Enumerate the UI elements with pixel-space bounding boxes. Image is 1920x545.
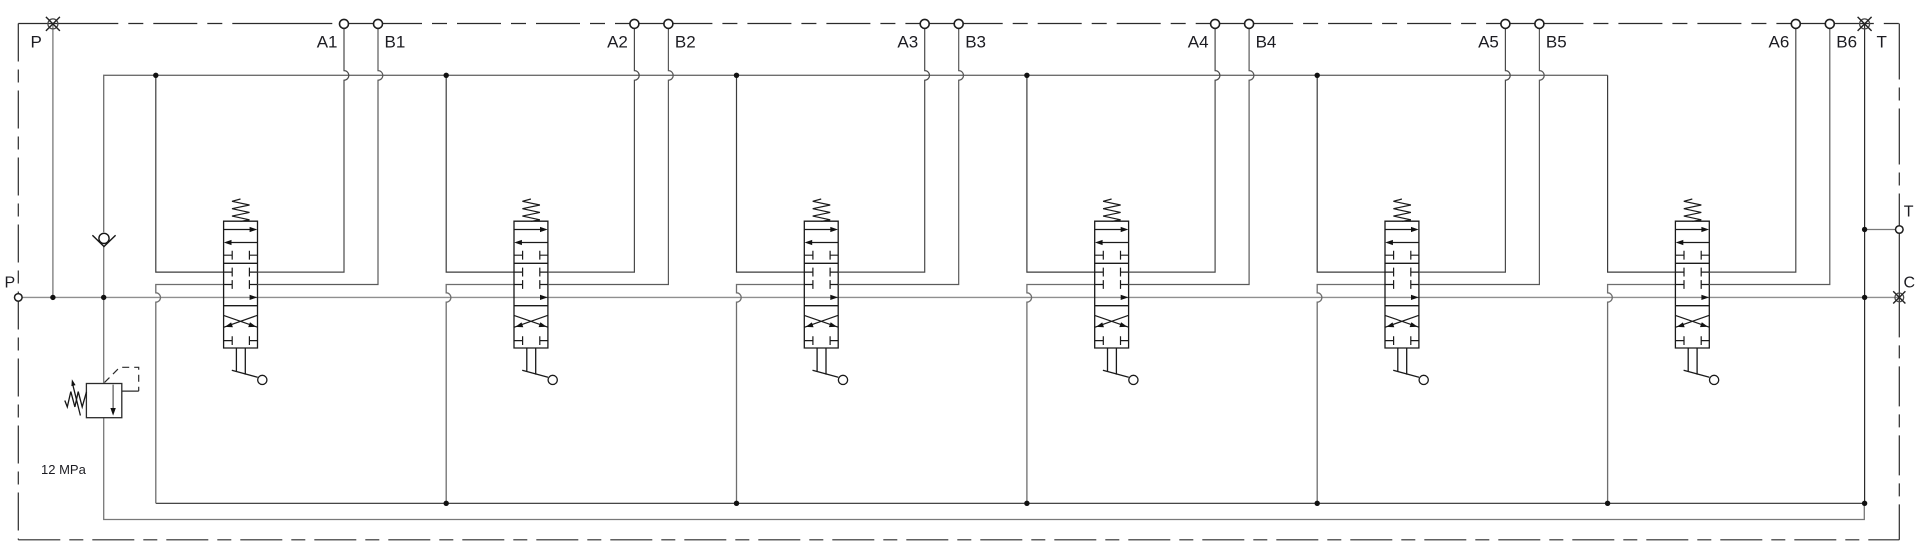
svg-text:C: C bbox=[1904, 275, 1916, 292]
svg-text:B2: B2 bbox=[675, 33, 696, 52]
svg-text:B4: B4 bbox=[1256, 33, 1277, 52]
svg-text:A4: A4 bbox=[1188, 33, 1209, 52]
svg-text:B6: B6 bbox=[1836, 33, 1857, 52]
svg-text:A2: A2 bbox=[607, 33, 628, 52]
svg-text:T: T bbox=[1877, 33, 1887, 52]
svg-text:B3: B3 bbox=[965, 33, 986, 52]
svg-text:A3: A3 bbox=[897, 33, 918, 52]
svg-text:P: P bbox=[5, 275, 16, 292]
svg-text:A6: A6 bbox=[1769, 33, 1790, 52]
svg-text:P: P bbox=[31, 33, 42, 52]
svg-text:12 MPa: 12 MPa bbox=[41, 462, 87, 477]
svg-text:T: T bbox=[1904, 204, 1914, 221]
svg-text:A5: A5 bbox=[1478, 33, 1499, 52]
svg-text:B5: B5 bbox=[1546, 33, 1567, 52]
svg-text:B1: B1 bbox=[385, 33, 406, 52]
svg-text:A1: A1 bbox=[317, 33, 338, 52]
